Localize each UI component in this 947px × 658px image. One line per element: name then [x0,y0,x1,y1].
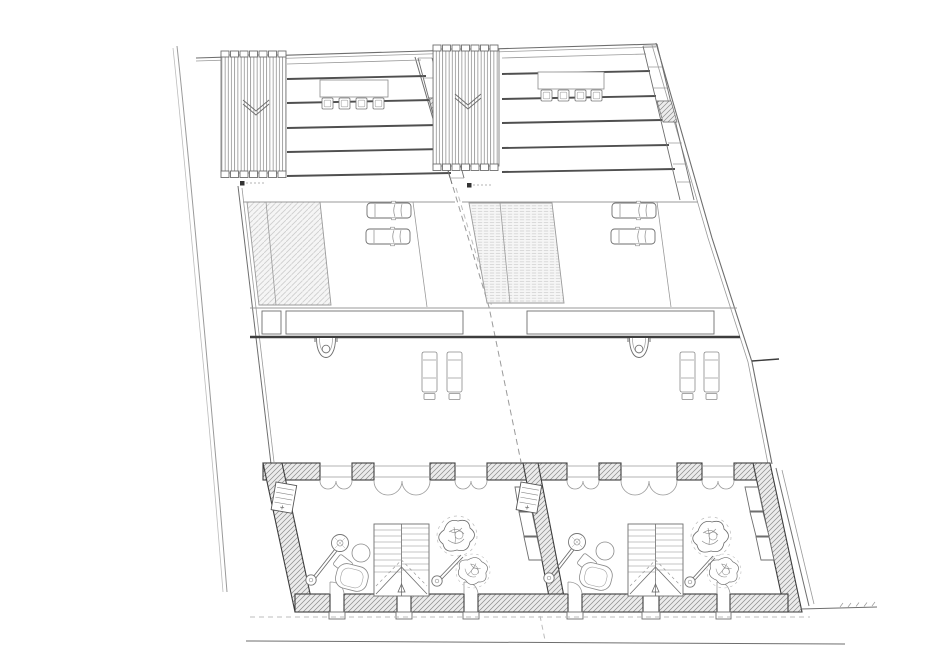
outdoor-basin [315,338,337,358]
car [367,201,411,220]
level-marker [240,181,264,186]
pergola-bottom-caps [221,171,286,178]
unit1-terrace [422,352,462,400]
planted-pad [247,202,331,305]
floor-plan-canvas [0,0,947,658]
staircase [374,524,429,596]
canopy-panel [262,311,281,334]
left-site-boundary [173,46,227,592]
pergola-bottom-caps [433,164,498,171]
potted-plant [449,547,497,595]
car [612,201,656,220]
canopy-band [250,308,740,358]
wall-niche [516,482,542,513]
canopy-panel [286,311,463,334]
site-plan-drawing [0,0,947,658]
sun-lounger [704,352,719,400]
outdoor-basin [628,338,650,358]
pergola-top-caps [221,51,286,57]
unit2-roof-deck [433,44,694,200]
canopy-panel [527,311,714,334]
roof-edge-strip [643,44,694,200]
car [366,227,410,246]
rooftop-table [538,72,604,101]
unit1-pergola [221,51,286,178]
car [611,227,655,246]
ottoman [352,544,370,562]
level-marker [467,183,491,188]
unit1-yard [243,201,455,307]
wall-niche [271,482,297,513]
staircase [628,524,683,596]
sun-lounger [422,352,437,400]
unit1-roof-deck [221,51,464,178]
unit2-yard [462,201,698,307]
door-step [329,612,731,619]
pergola-top-caps [433,45,498,51]
unit2-pergola [433,45,499,171]
potted-plant [691,517,731,557]
sun-lounger [447,352,462,400]
ottoman [596,542,614,560]
potted-plant [437,516,477,556]
potted-plant [700,547,748,595]
unit2-terrace [680,352,719,400]
unit1-interior [271,482,542,596]
rooftop-table [320,80,388,109]
sun-lounger [680,352,695,400]
